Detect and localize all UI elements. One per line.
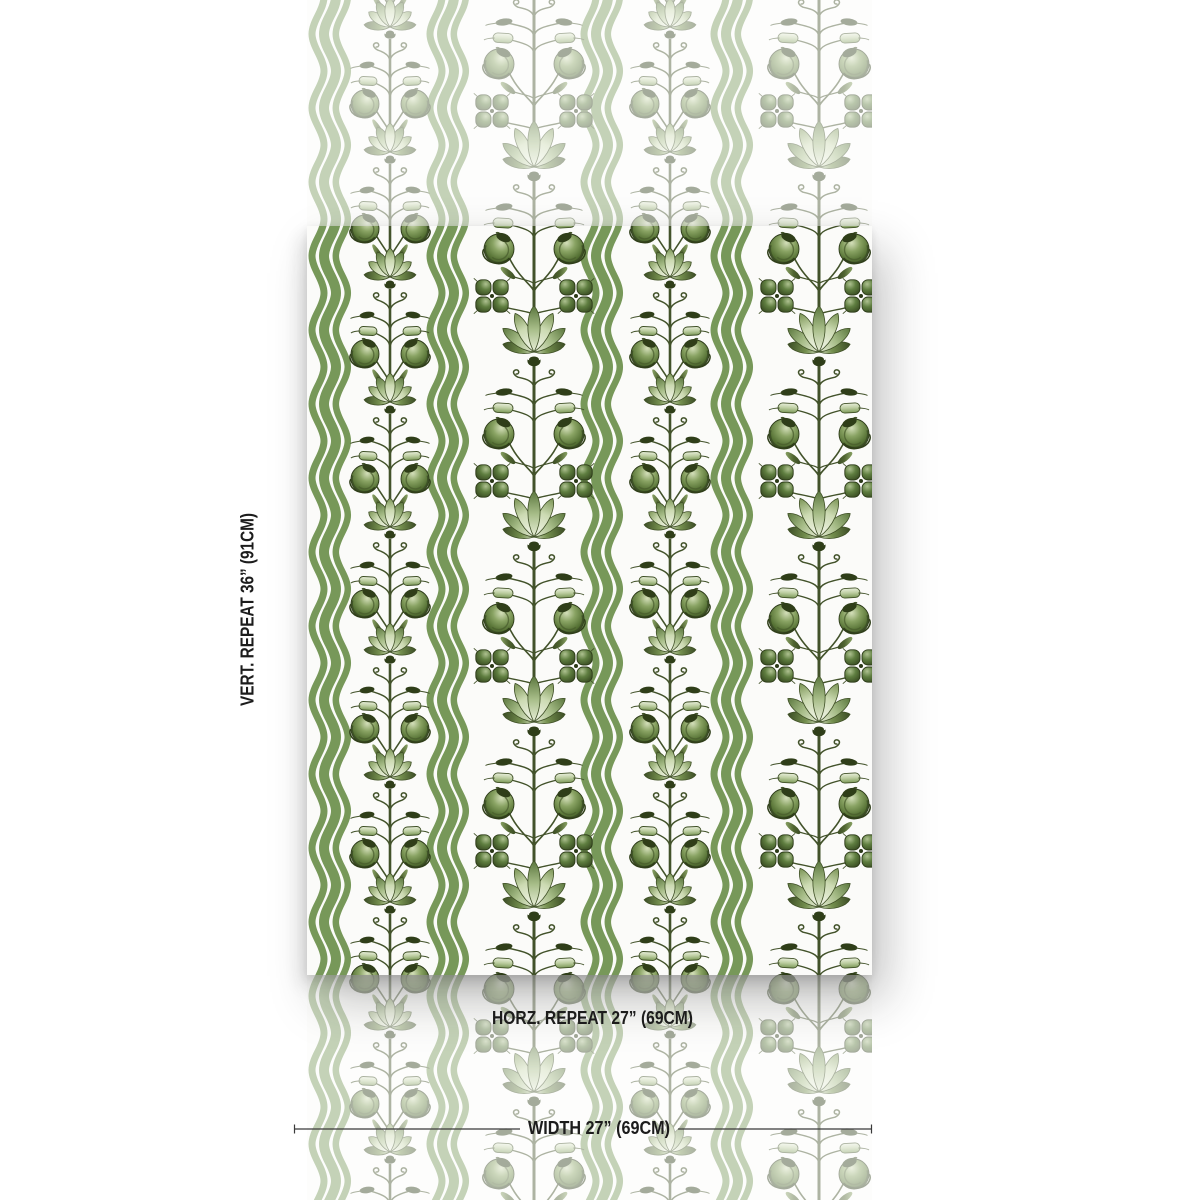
svg-text:VERT. REPEAT 36” (91CM): VERT. REPEAT 36” (91CM)	[237, 513, 258, 706]
svg-text:WIDTH 27” (69CM): WIDTH 27” (69CM)	[528, 1117, 670, 1138]
svg-text:HORZ. REPEAT 27” (69CM): HORZ. REPEAT 27” (69CM)	[492, 1007, 693, 1028]
